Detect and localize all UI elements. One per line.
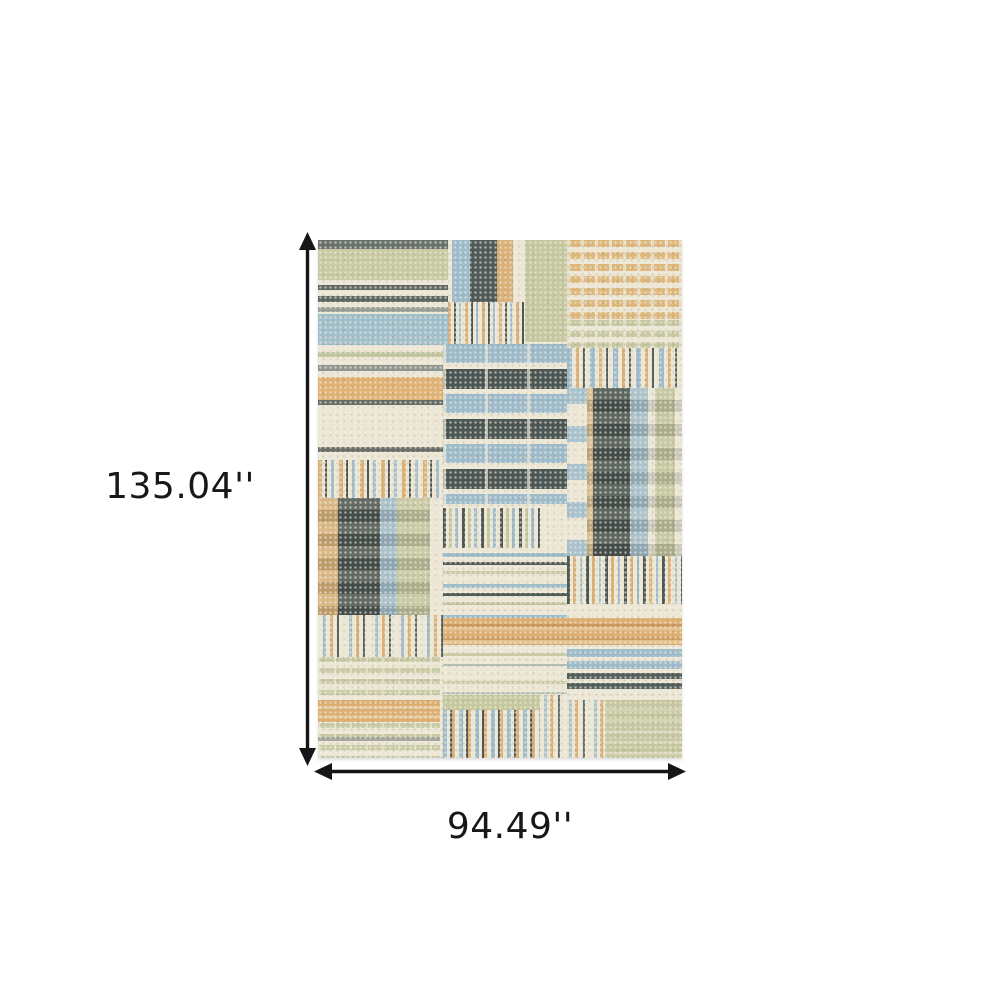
rug-panel [443, 508, 540, 548]
rug-panel [567, 240, 682, 320]
rug-panel [567, 645, 682, 700]
rug-panel [587, 388, 682, 556]
rug-panel [443, 618, 682, 645]
rug-panel [567, 388, 587, 556]
rug-panel [525, 240, 567, 342]
rug-panel [448, 302, 525, 344]
rug-panel [318, 240, 448, 405]
rug-panel [567, 556, 682, 604]
rug-panel [605, 700, 682, 758]
rug-panel [443, 695, 540, 710]
rug-panel [318, 405, 448, 460]
rug-panel [540, 695, 605, 758]
rug-image [318, 240, 682, 758]
rug-panel [567, 348, 682, 388]
rug-panel [318, 498, 430, 615]
rug-panel [318, 460, 448, 498]
rug-panel [443, 344, 567, 504]
rug-panel [448, 240, 525, 302]
rug-panel [567, 604, 682, 618]
horizontal-dimension-arrow-icon [311, 758, 689, 785]
rug-panel [443, 548, 567, 618]
height-dimension-label: 135.04'' [55, 463, 305, 511]
rug-panel [318, 700, 440, 722]
rug-panel [318, 615, 448, 657]
product-dimension-image: 135.04'' 94.49'' [0, 0, 1000, 1000]
rug-panel [443, 645, 567, 695]
width-dimension-label: 94.49'' [385, 803, 635, 851]
rug-panel [318, 737, 440, 741]
rug-panel [567, 320, 682, 348]
rug-panel [443, 710, 540, 758]
